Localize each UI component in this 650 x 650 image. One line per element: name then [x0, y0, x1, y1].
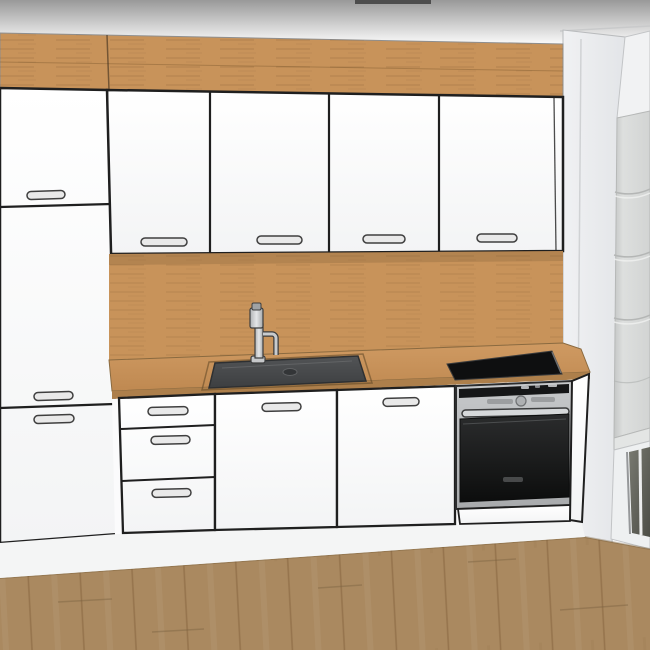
- oven-display-segment: [535, 385, 540, 388]
- kitchen-render-viewport: [0, 0, 650, 650]
- window-mullion: [640, 449, 641, 535]
- window-roman-blind: [614, 111, 650, 438]
- dishwasher-door: [337, 386, 455, 527]
- upper-cabinet-row: [107, 90, 563, 254]
- oven-brand-logo: [503, 477, 523, 482]
- cabinet-handle: [141, 238, 187, 246]
- tall-fridge-cabinet: [0, 88, 118, 543]
- below-oven-drawer: [458, 505, 572, 524]
- cabinet-handle: [152, 488, 191, 497]
- cabinet-handle: [257, 236, 302, 244]
- ceiling-accent-bar: [355, 0, 431, 4]
- built-in-oven: [456, 381, 572, 509]
- backsplash-grain: [109, 251, 563, 360]
- cabinet-handle: [148, 406, 188, 415]
- soffit-grain: [0, 33, 563, 97]
- tall-cabinet-front: [0, 88, 118, 543]
- sink-base-cabinet: [215, 390, 337, 530]
- oven-control-knob: [516, 396, 526, 406]
- cabinet-handle: [477, 234, 517, 242]
- cabinet-handle: [363, 235, 405, 243]
- oven-control-buttons: [531, 397, 555, 402]
- cabinet-handle: [262, 402, 301, 411]
- sink-drain: [283, 369, 297, 376]
- cabinet-handle: [27, 190, 65, 199]
- upper-cabinet-run: [107, 90, 563, 254]
- oven-control-buttons: [487, 399, 513, 404]
- cabinet-handle: [383, 398, 419, 407]
- drawer-unit: [119, 394, 215, 533]
- faucet-head: [250, 308, 263, 328]
- dishwasher: [337, 386, 455, 527]
- oven-display-segment: [548, 384, 557, 387]
- oven-display-segment: [521, 386, 529, 389]
- kitchen-render: [0, 0, 650, 650]
- faucet-cap: [252, 303, 261, 310]
- cabinet-handle: [151, 435, 190, 444]
- cabinet-handle: [34, 414, 74, 423]
- cabinet-handle: [34, 391, 73, 400]
- faucet-column: [255, 324, 263, 358]
- oven-door-glass: [460, 414, 569, 502]
